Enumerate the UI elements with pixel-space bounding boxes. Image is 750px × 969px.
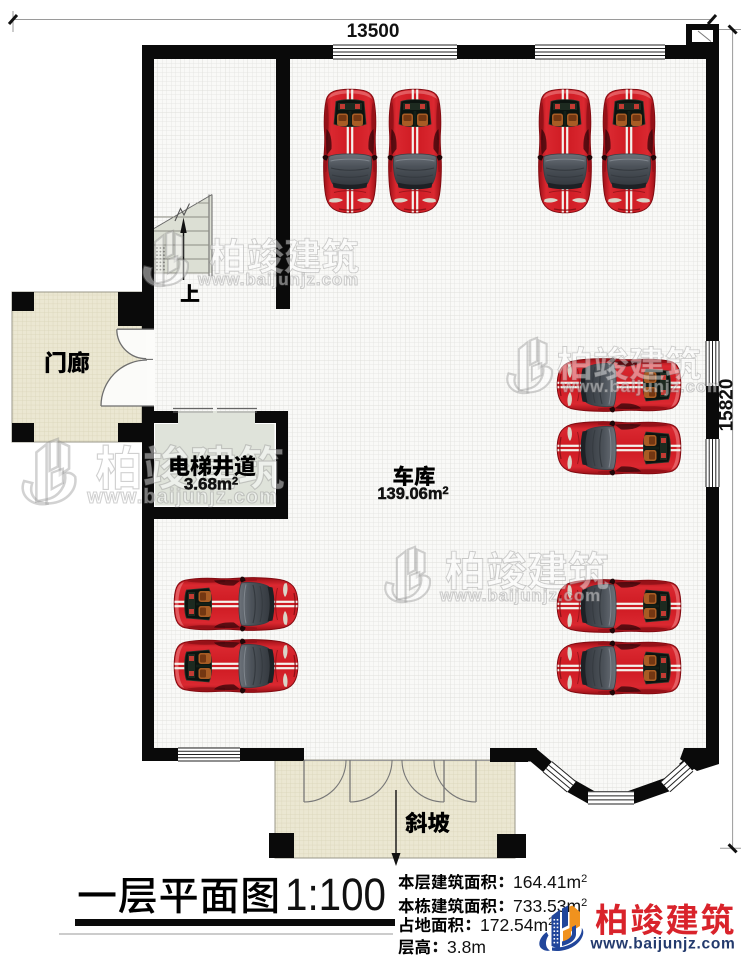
svg-text:3.68m2: 3.68m2 — [184, 475, 238, 494]
svg-text:164.41m2: 164.41m2 — [513, 872, 587, 892]
svg-text:15820: 15820 — [717, 379, 738, 432]
svg-text:www.baijunjz.com: www.baijunjz.com — [561, 377, 723, 396]
svg-text:www.baijunjz.com: www.baijunjz.com — [197, 270, 359, 289]
svg-text:www.baijunjz.com: www.baijunjz.com — [439, 586, 601, 605]
svg-text:13500: 13500 — [347, 21, 400, 42]
svg-text:1:100: 1:100 — [285, 869, 386, 920]
svg-text:172.54m2: 172.54m2 — [480, 915, 554, 935]
svg-text:www.baijunjz.com: www.baijunjz.com — [590, 936, 736, 953]
svg-text:139.06m2: 139.06m2 — [377, 485, 448, 503]
svg-text:3.8m: 3.8m — [447, 937, 486, 957]
svg-text:www.baijunjz.com: www.baijunjz.com — [86, 486, 278, 508]
